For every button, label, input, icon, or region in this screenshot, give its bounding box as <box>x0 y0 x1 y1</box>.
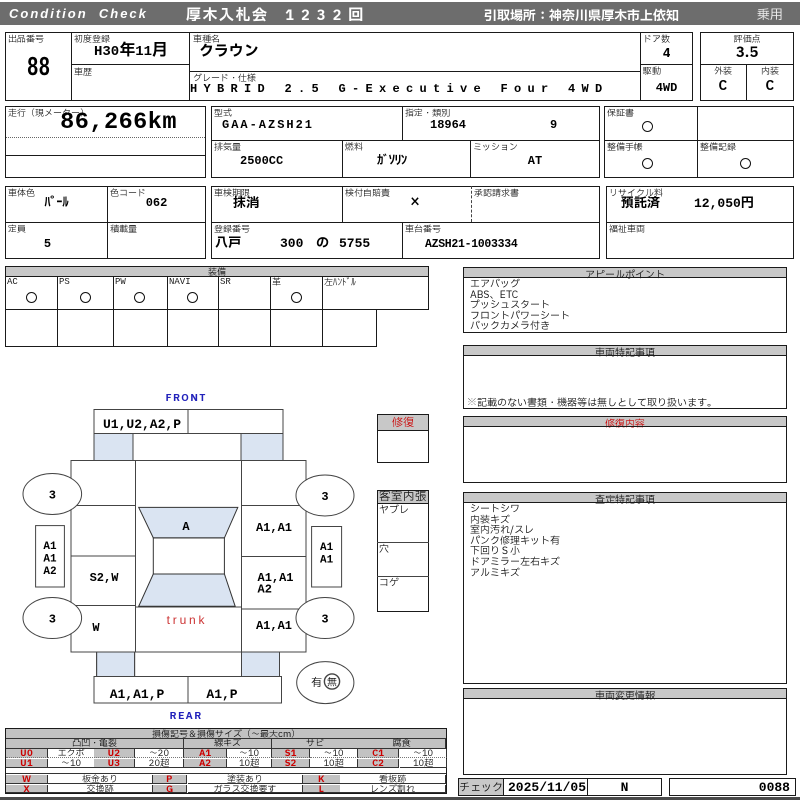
svg-text:A1,A1: A1,A1 <box>256 619 292 633</box>
svg-text:A2: A2 <box>43 566 56 578</box>
svg-text:FRONT: FRONT <box>165 391 206 406</box>
svg-text:A1,P: A1,P <box>206 687 237 702</box>
svg-text:3: 3 <box>49 613 56 627</box>
svg-text:trunk: trunk <box>167 613 208 627</box>
svg-text:REAR: REAR <box>169 709 202 724</box>
svg-text:A1,A1: A1,A1 <box>256 521 292 535</box>
svg-text:W: W <box>92 621 100 635</box>
svg-text:A: A <box>182 520 190 534</box>
svg-text:3: 3 <box>49 489 56 503</box>
svg-text:A1: A1 <box>43 554 57 566</box>
svg-text:S2,W: S2,W <box>90 571 120 585</box>
svg-text:無: 無 <box>327 676 337 691</box>
svg-text:A1: A1 <box>320 555 334 567</box>
svg-text:有: 有 <box>311 674 322 691</box>
svg-text:3: 3 <box>321 490 328 504</box>
svg-text:3: 3 <box>321 613 328 627</box>
svg-text:A1: A1 <box>320 542 334 554</box>
svg-text:U1,U2,A2,P: U1,U2,A2,P <box>103 417 181 432</box>
svg-text:A1,A1,P: A1,A1,P <box>110 687 165 702</box>
svg-text:A2: A2 <box>258 583 272 597</box>
svg-text:A1: A1 <box>43 541 57 553</box>
